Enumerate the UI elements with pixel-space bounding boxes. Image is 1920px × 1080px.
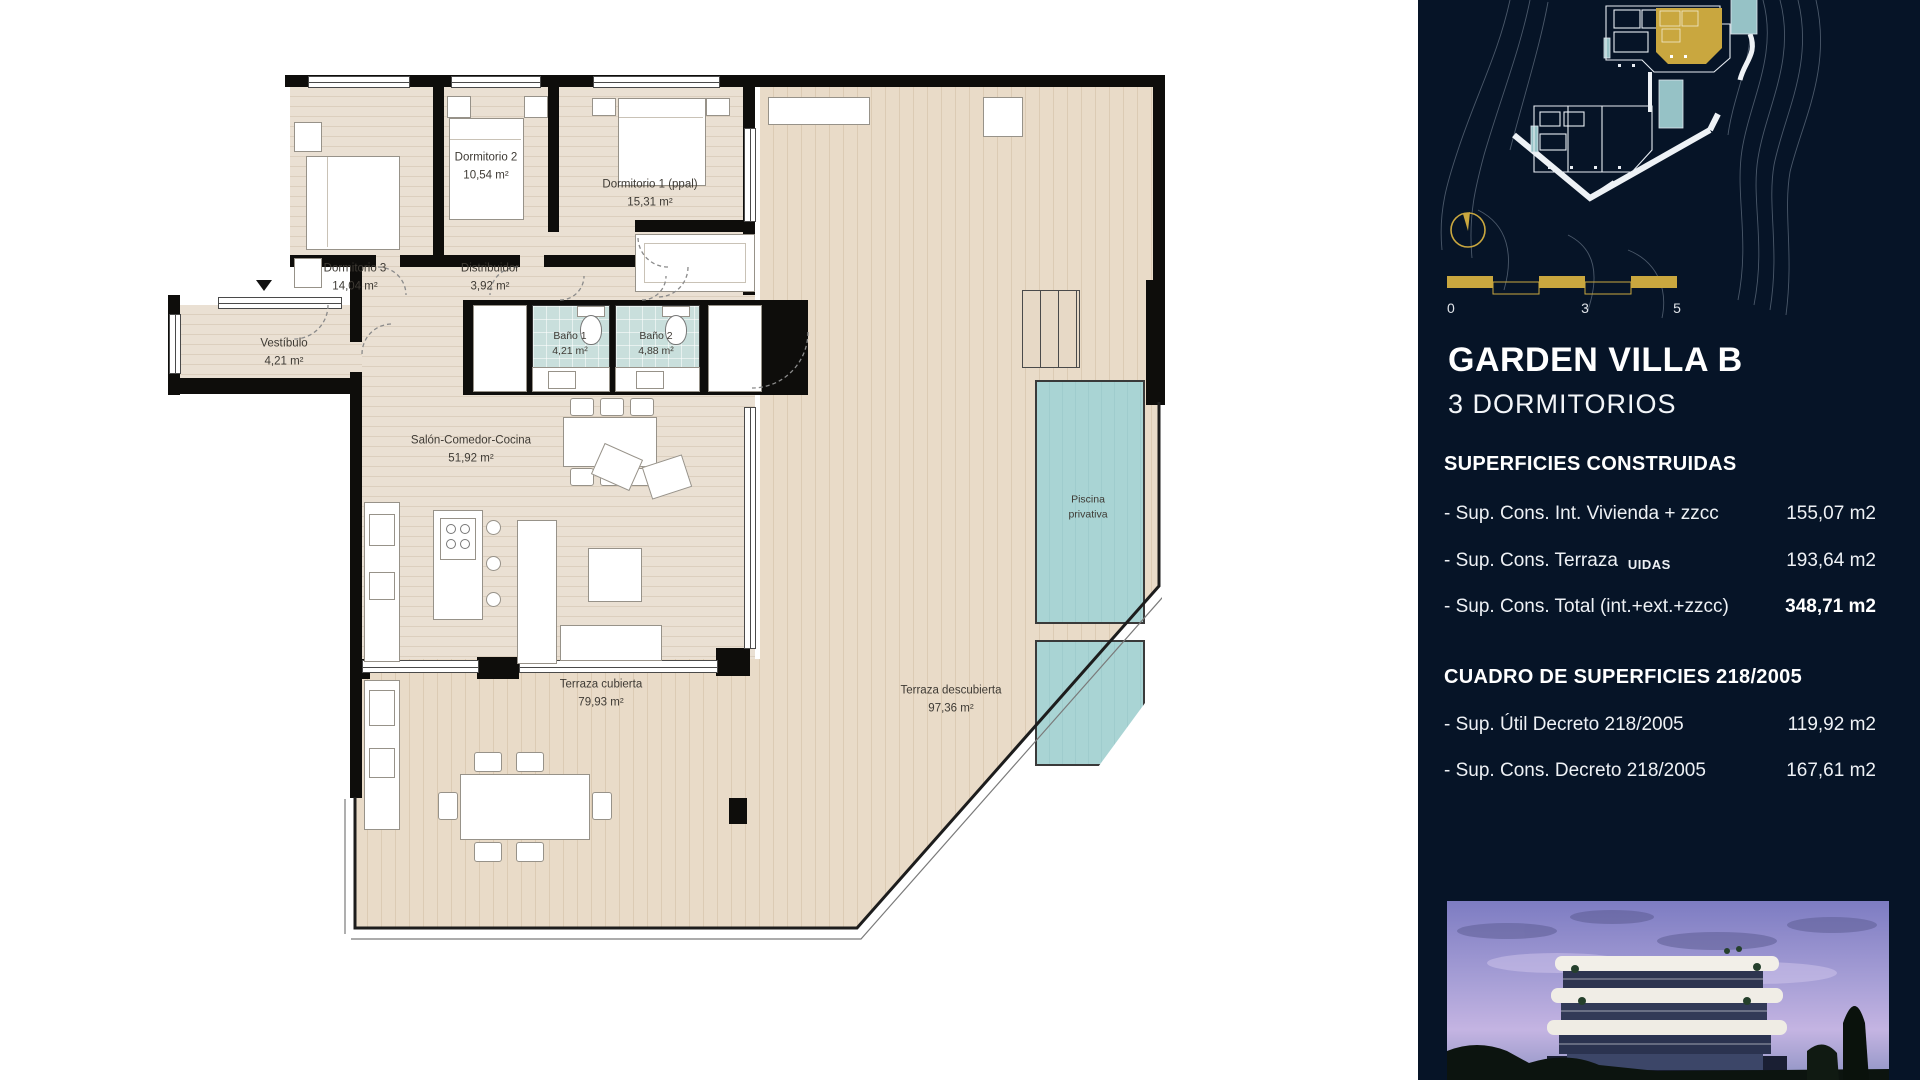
floorplan-sheet: { "plan": { "entry_marker": "entrance", … [0,0,1920,1080]
room-label-bano-1: Baño 14,21 m² [552,329,588,359]
entrance-arrow-icon [256,280,272,291]
room-label-vestibulo: Vestíbulo4,21 m² [260,335,307,372]
room-label-terraza-descubierta: Terraza descubierta97,36 m² [901,682,1002,719]
area-row: - Sup. Útil Decreto 218/2005 119,92 m2 [1444,714,1876,736]
room-label-bano-2: Baño 24,88 m² [638,329,674,359]
floor-plan: Dormitorio 210,54 m² Dormitorio 1 (ppal)… [168,62,1162,943]
room-label-distribuidor: Distribuidor3,92 m² [461,260,519,297]
unit-title: GARDEN VILLA B [1448,341,1743,380]
scale-label-mid: 3 [1581,300,1589,316]
room-label-piscina: Piscina privativa [1056,492,1120,521]
highlighted-unit [1656,8,1722,64]
scale-label-end: 5 [1673,300,1681,316]
section-heading-cuadro: CUADRO DE SUPERFICIES 218/2005 [1444,666,1802,689]
room-label-dormitorio-2: Dormitorio 210,54 m² [455,149,518,186]
area-row: - Sup. Cons. Int. Vivienda + zzcc 155,07… [1444,503,1876,525]
site-plan: 0 3 5 [1418,0,1920,320]
scale-label-start: 0 [1447,300,1455,316]
building-lower [1534,64,1652,172]
area-row-total: - Sup. Cons. Total (int.+ext.+zzcc) 348,… [1444,596,1876,618]
building-render-image [1447,901,1889,1080]
site-pools [1531,0,1757,152]
info-sidebar: 0 3 5 GARDEN VILLA B 3 DORMITORIOS SUPER… [1418,0,1920,1080]
room-label-terraza-cubierta: Terraza cubierta79,93 m² [560,676,642,713]
area-row: - Sup. Cons. TerrazaUIDAS 193,64 m2 [1444,550,1876,572]
room-label-dormitorio-1: Dormitorio 1 (ppal)15,31 m² [602,176,697,213]
unit-subtitle: 3 DORMITORIOS [1448,389,1677,420]
area-row: - Sup. Cons. Decreto 218/2005 167,61 m2 [1444,760,1876,782]
section-heading-superficies: SUPERFICIES CONSTRUIDAS [1444,453,1737,476]
north-compass-icon [1451,212,1485,247]
room-label-salon: Salón-Comedor-Cocina51,92 m² [411,432,531,469]
site-paths [1514,34,1752,198]
room-label-dormitorio-3: Dormitorio 314,04 m² [324,260,387,297]
terrain-contours [1441,0,1820,318]
scale-bar: 0 3 5 [1447,276,1681,316]
terraza-suffix: UIDAS [1628,557,1671,572]
